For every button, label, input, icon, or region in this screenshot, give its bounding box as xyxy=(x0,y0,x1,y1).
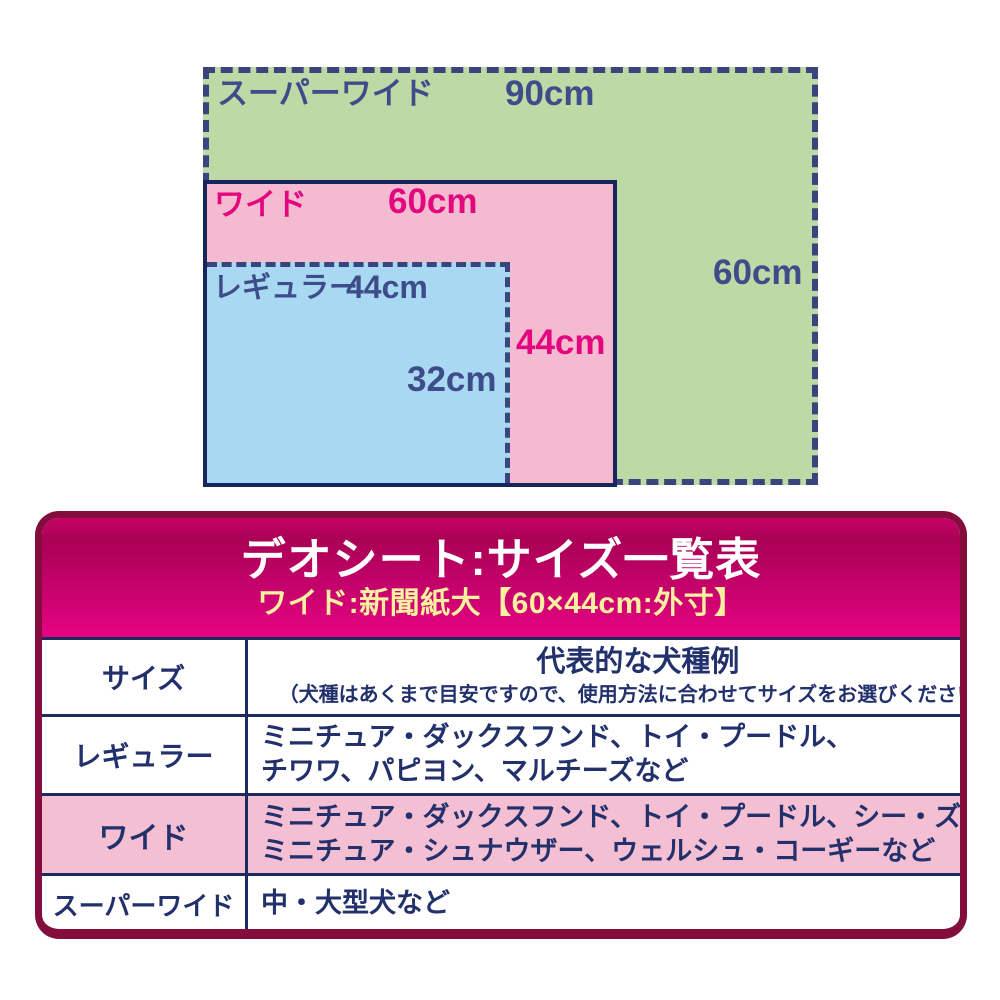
super-wide-width-label: 90cm xyxy=(505,76,595,111)
wide-height-label: 44cm xyxy=(516,325,606,360)
wide-width-label: 60cm xyxy=(388,184,478,219)
table-row-wide-size: ワイド xyxy=(42,796,248,876)
size-infographic: スーパーワイド 90cm 60cm ワイド 60cm 44cm レギュラー 44… xyxy=(0,0,1000,1000)
table-header-size: サイズ xyxy=(42,640,248,717)
super-wide-label: スーパーワイド xyxy=(217,78,434,109)
table-row-super-wide-size: スーパーワイド xyxy=(42,876,248,932)
breeds-column-note: （犬種はあくまで目安ですので、使用方法に合わせてサイズをお選びください） xyxy=(279,683,967,707)
breeds-line-2: ミニチュア・シュナウザー、ウェルシュ・コーギーなど xyxy=(261,835,935,869)
wide-label: ワイド xyxy=(214,189,307,220)
size-table-panel: デオシート:サイズ一覧表 ワイド:新聞紙大【60×44cm:外寸】 サイズ 代表… xyxy=(35,511,967,939)
row-label: スーパーワイド xyxy=(53,886,235,923)
breeds-column-header: 代表的な犬種例 xyxy=(536,647,739,679)
breeds-line-1: 中・大型犬など xyxy=(261,887,450,921)
size-table: サイズ 代表的な犬種例 （犬種はあくまで目安ですので、使用方法に合わせてサイズを… xyxy=(42,637,960,932)
breeds-line-1: ミニチュア・ダックスフンド、トイ・プードル、シー・ズー、 xyxy=(261,801,967,835)
breeds-line-2: チワワ、パピヨン、マルチーズなど xyxy=(261,755,688,789)
row-label: ワイド xyxy=(99,813,189,857)
panel-header: デオシート:サイズ一覧表 ワイド:新聞紙大【60×44cm:外寸】 xyxy=(42,518,960,637)
table-row-regular-size: レギュラー xyxy=(42,717,248,796)
size-diagram: スーパーワイド 90cm 60cm ワイド 60cm 44cm レギュラー 44… xyxy=(0,0,1000,510)
regular-label: レギュラー xyxy=(213,274,358,303)
breeds-line-1: ミニチュア・ダックスフンド、トイ・プードル、 xyxy=(261,721,853,755)
table-row-super-wide-breeds: 中・大型犬など xyxy=(248,876,967,932)
panel-subtitle: ワイド:新聞紙大【60×44cm:外寸】 xyxy=(257,587,745,620)
size-column-header: サイズ xyxy=(102,657,185,697)
regular-width-label: 44cm xyxy=(346,271,428,303)
table-row-wide-breeds: ミニチュア・ダックスフンド、トイ・プードル、シー・ズー、 ミニチュア・シュナウザ… xyxy=(248,796,967,876)
table-header-breeds: 代表的な犬種例 （犬種はあくまで目安ですので、使用方法に合わせてサイズをお選びく… xyxy=(248,640,967,717)
row-label: レギュラー xyxy=(73,735,213,775)
panel-title: デオシート:サイズ一覧表 xyxy=(241,535,762,585)
table-row-regular-breeds: ミニチュア・ダックスフンド、トイ・プードル、 チワワ、パピヨン、マルチーズなど xyxy=(248,717,967,796)
regular-height-label: 32cm xyxy=(407,362,497,397)
super-wide-height-label: 60cm xyxy=(713,255,803,290)
